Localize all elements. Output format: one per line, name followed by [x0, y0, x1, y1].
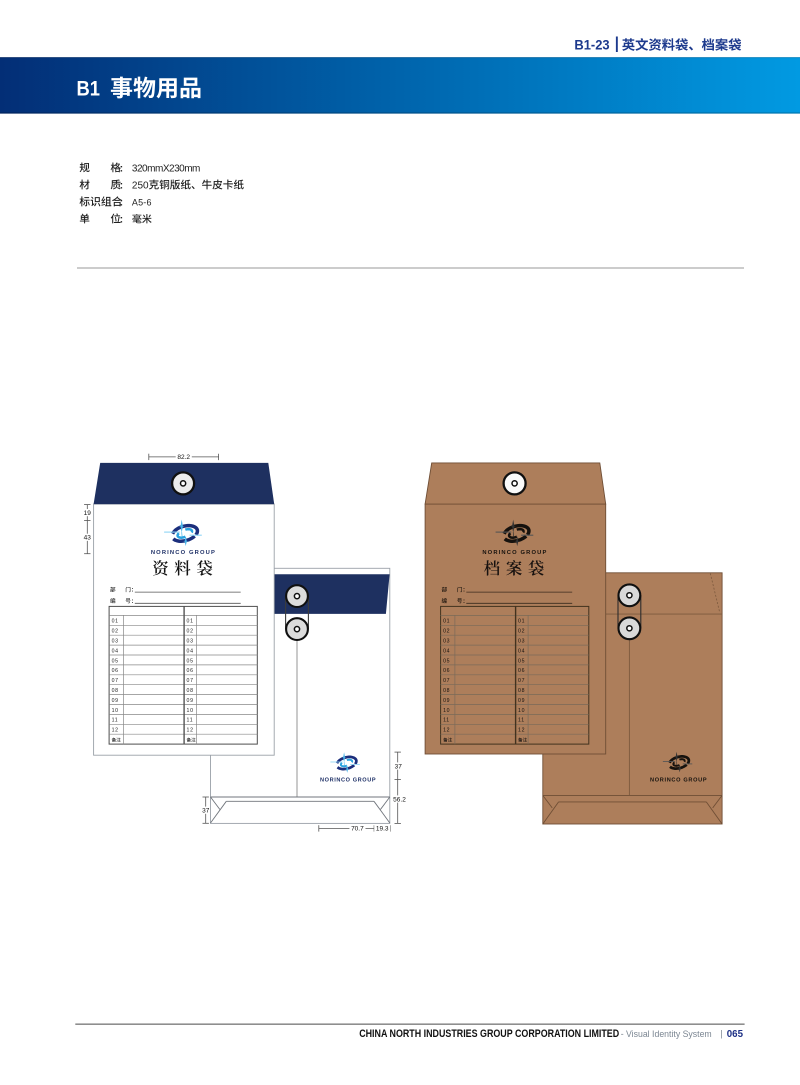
svg-text:08: 08: [112, 688, 119, 694]
svg-text:09: 09: [187, 698, 194, 704]
svg-text:065: 065: [727, 1029, 744, 1040]
svg-text:03: 03: [187, 639, 194, 645]
svg-text:12: 12: [112, 728, 119, 734]
svg-text:- Visual Identity System: - Visual Identity System: [621, 1029, 712, 1039]
svg-text:05: 05: [518, 658, 525, 664]
svg-text:11: 11: [187, 718, 194, 724]
svg-text:04: 04: [443, 648, 450, 654]
svg-text:70.7: 70.7: [351, 826, 364, 833]
svg-text::: :: [120, 180, 124, 192]
svg-text:01: 01: [443, 619, 450, 625]
svg-text:08: 08: [518, 688, 525, 694]
svg-text:10: 10: [518, 708, 525, 714]
svg-text::: :: [120, 214, 124, 226]
svg-text:08: 08: [443, 688, 450, 694]
svg-text:01: 01: [518, 619, 525, 625]
svg-text:12: 12: [518, 728, 525, 734]
svg-text:19.3: 19.3: [376, 826, 389, 833]
svg-text:NORINCO GROUP: NORINCO GROUP: [650, 777, 707, 783]
svg-text:250: 250: [132, 181, 149, 192]
svg-text:B1-23: B1-23: [574, 37, 609, 52]
svg-text:09: 09: [518, 698, 525, 704]
svg-text:04: 04: [518, 648, 525, 654]
svg-text:320mmX230mm: 320mmX230mm: [132, 163, 201, 174]
svg-text:04: 04: [187, 648, 194, 654]
svg-text:10: 10: [187, 708, 194, 714]
svg-text::: :: [120, 162, 124, 174]
svg-text:02: 02: [187, 629, 194, 635]
svg-text:06: 06: [112, 668, 119, 674]
svg-text:03: 03: [518, 639, 525, 645]
svg-text:10: 10: [112, 708, 119, 714]
svg-text:08: 08: [187, 688, 194, 694]
svg-text:07: 07: [112, 678, 119, 684]
svg-text:02: 02: [443, 629, 450, 635]
svg-text:05: 05: [443, 658, 450, 664]
svg-text:06: 06: [187, 668, 194, 674]
svg-text:NORINCO GROUP: NORINCO GROUP: [151, 550, 216, 556]
svg-text:37: 37: [202, 808, 210, 815]
svg-text:B1: B1: [77, 77, 101, 101]
svg-text::: :: [463, 588, 465, 594]
svg-text:01: 01: [112, 619, 119, 625]
svg-text:10: 10: [443, 708, 450, 714]
svg-text:05: 05: [112, 658, 119, 664]
svg-text:03: 03: [443, 639, 450, 645]
svg-text::: :: [132, 588, 134, 594]
svg-text::: :: [463, 599, 465, 605]
svg-text:07: 07: [443, 678, 450, 684]
svg-text:12: 12: [443, 728, 450, 734]
svg-text:07: 07: [518, 678, 525, 684]
svg-text:06: 06: [518, 668, 525, 674]
svg-text::: :: [132, 599, 134, 605]
svg-text:NORINCO GROUP: NORINCO GROUP: [482, 550, 547, 556]
svg-text:01: 01: [187, 619, 194, 625]
svg-text:19: 19: [84, 510, 92, 517]
svg-text:82.2: 82.2: [177, 454, 190, 461]
svg-text:05: 05: [187, 658, 194, 664]
svg-text:09: 09: [112, 698, 119, 704]
svg-text:06: 06: [443, 668, 450, 674]
svg-text:CHINA NORTH INDUSTRIES GROUP C: CHINA NORTH INDUSTRIES GROUP CORPORATION…: [359, 1028, 619, 1040]
svg-text:|: |: [720, 1029, 722, 1039]
svg-text::: :: [120, 197, 124, 209]
svg-text:04: 04: [112, 648, 119, 654]
svg-text:07: 07: [187, 678, 194, 684]
svg-text:56.2: 56.2: [393, 796, 406, 803]
svg-text:43: 43: [84, 535, 92, 542]
svg-text:12: 12: [187, 728, 194, 734]
svg-text:37: 37: [395, 763, 403, 770]
svg-text:11: 11: [112, 718, 119, 724]
svg-text:11: 11: [518, 718, 525, 724]
svg-text:A5-6: A5-6: [132, 198, 152, 208]
svg-text:NORINCO GROUP: NORINCO GROUP: [320, 777, 376, 783]
svg-text:02: 02: [518, 629, 525, 635]
svg-text:02: 02: [112, 629, 119, 635]
svg-text:11: 11: [443, 718, 450, 724]
svg-text:03: 03: [112, 639, 119, 645]
svg-text:09: 09: [443, 698, 450, 704]
